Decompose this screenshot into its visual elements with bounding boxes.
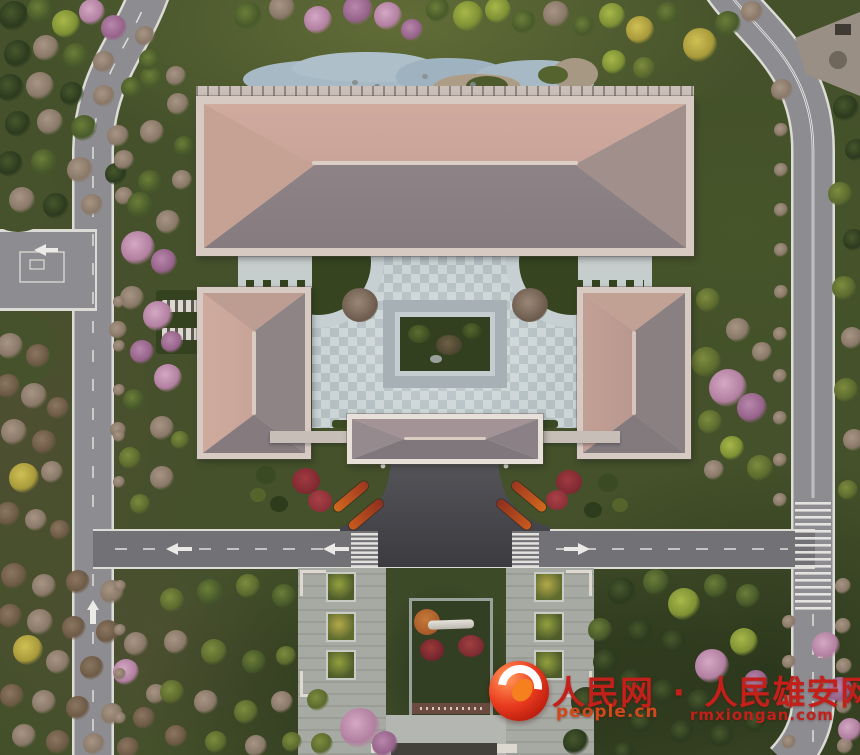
tree [745,711,767,733]
tree [843,229,860,251]
tree [143,301,173,331]
tree [9,463,39,493]
tree [651,679,677,705]
tree [774,123,788,137]
tree [4,40,32,68]
tree [27,609,53,635]
tree [782,655,796,669]
tree [307,689,329,711]
tree [276,646,296,666]
tree [401,19,423,41]
tree [171,431,189,449]
tree [626,16,654,44]
tree [838,718,860,742]
north-walkway [196,86,694,96]
tree [25,509,47,531]
tree [160,680,184,704]
tree [26,72,54,100]
tree [571,687,601,717]
tree [698,410,722,434]
gate-pavilion [347,414,543,464]
tree [43,193,69,219]
gate-wall-west [270,431,348,443]
tree [0,333,23,359]
tree [838,480,858,500]
tree [619,669,645,695]
tree [113,296,125,308]
tree [79,0,105,25]
gate-roof [352,419,538,459]
tree [1,563,27,589]
tree [121,231,155,265]
tree [774,163,788,177]
tree [139,49,161,71]
tree [272,584,296,608]
east-wing-roof [583,293,685,453]
tree [161,331,183,353]
tree [0,684,24,708]
tree [166,66,186,86]
tree [114,668,126,680]
tree [715,11,741,37]
tree [833,95,859,121]
tree [282,732,302,752]
tree [21,383,47,409]
tree [107,125,129,147]
tree [81,194,103,216]
tree [741,1,763,23]
tree [66,696,90,720]
tree [695,649,729,683]
west-wing-roof [203,293,305,453]
tree [828,182,852,206]
tree [773,453,787,467]
tree [704,574,728,598]
tree [172,170,192,190]
tree [1,419,27,445]
tree [633,57,655,79]
tree [343,0,373,25]
tree [66,570,90,594]
tree [236,574,260,598]
tree [62,616,86,640]
tree [269,0,295,21]
tree [614,742,634,755]
tree [573,15,595,37]
tree [374,2,402,30]
tree [737,393,767,423]
tree [83,733,105,755]
gate-wall-east [542,431,620,443]
tree [832,276,856,300]
tree [32,574,56,598]
tree [37,109,63,135]
tree [0,151,23,177]
tree [205,731,227,753]
tree [485,0,511,23]
tree [774,243,788,257]
tree [588,618,612,642]
tree [0,1,29,31]
tree [0,502,20,526]
tree [113,340,125,352]
tree [630,710,654,734]
roof-ridge [312,161,578,165]
tree [453,1,483,31]
tree [720,436,744,460]
tree [201,639,227,665]
tree [782,735,796,749]
tree [710,724,734,748]
tree [114,150,134,170]
tree [512,10,536,34]
tree [0,374,20,398]
tree [113,384,125,396]
roof-ridge [632,331,636,415]
tree [704,460,724,480]
tree [773,327,787,341]
tree [130,340,154,364]
tree [80,656,104,680]
tree [119,447,141,469]
tree [63,43,89,69]
tree [113,430,125,442]
tree [117,737,139,755]
tree [150,466,174,490]
roof-ridge [252,331,256,415]
tree [167,93,189,115]
tree [135,26,155,46]
main-hall-roof [204,104,686,248]
tree [563,729,589,755]
tree [730,628,758,656]
tree [245,735,267,755]
tree [841,327,860,349]
tree [138,170,162,194]
tree [661,629,687,655]
tree [687,689,713,715]
roof-ridge [404,437,486,440]
tree [93,51,115,73]
tree [5,111,31,137]
tree [52,10,80,38]
tree [752,342,772,362]
tree [101,15,127,41]
tree [747,455,773,481]
tree [845,139,860,161]
tree [234,2,262,30]
tree [9,187,35,213]
tree [197,579,223,605]
tree [160,588,184,612]
tree [426,0,450,22]
tree [656,2,680,26]
tree [109,321,127,339]
tree [47,397,69,419]
tree [835,618,851,634]
tree [156,210,180,234]
tree [12,724,36,748]
tree [31,149,57,175]
tree [123,389,145,411]
tree [71,115,97,141]
tree [773,411,787,425]
tree [151,249,177,275]
tree [271,691,293,713]
main-hall [196,96,694,256]
tree [726,318,750,342]
tree [827,677,853,703]
tree [736,584,760,608]
tree [304,6,332,34]
tree [32,690,56,714]
tree [114,580,126,592]
tree [0,604,22,628]
tree [812,632,840,660]
tree [836,658,852,674]
tree [782,615,796,629]
tree [696,288,720,312]
tree [130,494,150,514]
tree [67,157,93,183]
tree [93,85,115,107]
tree [32,430,56,454]
tree [50,520,70,540]
tree [26,344,50,368]
tree [668,588,700,620]
tree [843,429,860,451]
tree [773,369,787,383]
tree [60,82,84,106]
tree [773,493,787,507]
tree [774,285,788,299]
tree [174,136,194,156]
tree [683,28,717,62]
tree [133,707,155,729]
tree [599,3,625,29]
tree [834,378,858,402]
tree [602,50,626,74]
tree [242,650,266,674]
tree [234,700,258,724]
tree [627,619,653,645]
tree [593,649,619,675]
tree [543,1,569,27]
tree [140,120,164,144]
tree [46,650,70,674]
tree [311,733,333,755]
tree [744,670,768,694]
tree [27,0,53,23]
tree [154,364,182,392]
tree [670,720,694,744]
tree [46,730,70,754]
tree [835,578,851,594]
tree [165,725,187,747]
tree [782,695,796,709]
tree [127,192,153,218]
tree [113,476,125,488]
tree [774,203,788,217]
tree [41,461,63,483]
tree [164,630,188,654]
tree [771,79,793,101]
tree [643,569,669,595]
tree [124,632,148,656]
tree [372,731,398,755]
tree [114,712,126,724]
tree [194,690,218,714]
tree [0,74,24,102]
tree [114,624,126,636]
tree [33,35,59,61]
aerial-photo: 人民网 · 人民雄安网 people.cn rmxiongan.com [0,0,860,755]
tree [13,635,43,665]
tree [608,578,636,606]
